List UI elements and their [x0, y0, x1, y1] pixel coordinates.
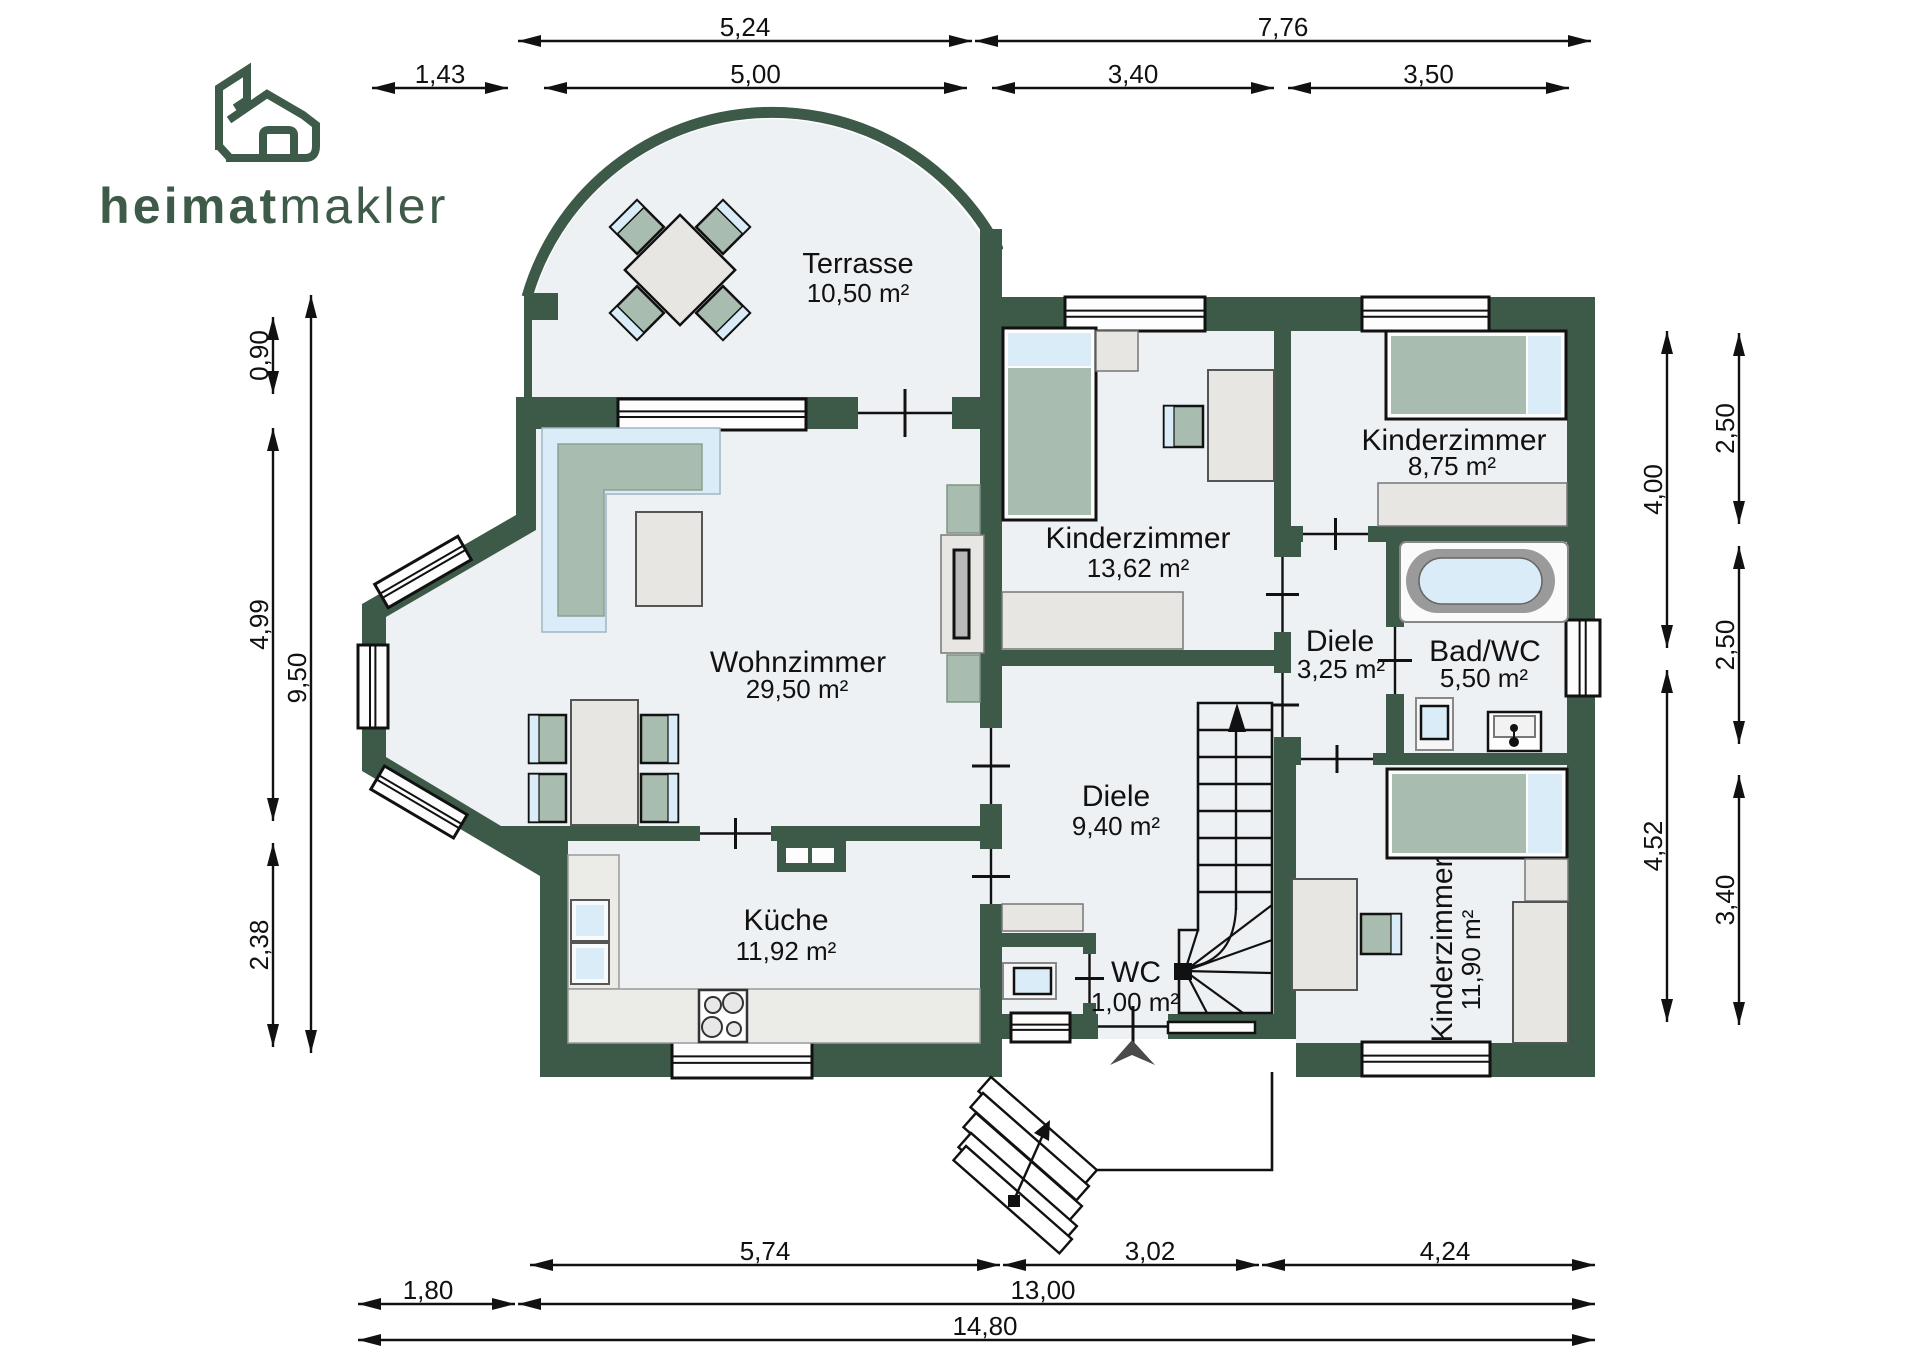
svg-text:5,74: 5,74: [740, 1236, 791, 1266]
svg-text:4,52: 4,52: [1638, 821, 1668, 872]
svg-text:3,40: 3,40: [1108, 59, 1159, 89]
svg-text:2,38: 2,38: [244, 920, 274, 971]
svg-text:11,92 m²: 11,92 m²: [736, 936, 837, 966]
svg-text:1,00 m²: 1,00 m²: [1091, 987, 1179, 1017]
svg-text:4,99: 4,99: [244, 599, 274, 650]
svg-text:0,90: 0,90: [244, 330, 274, 381]
svg-text:3,02: 3,02: [1125, 1236, 1176, 1266]
svg-text:Kinderzimmer: Kinderzimmer: [1426, 857, 1459, 1042]
svg-text:29,50 m²: 29,50 m²: [746, 674, 849, 704]
svg-text:9,40 m²: 9,40 m²: [1072, 811, 1160, 841]
svg-text:2,50: 2,50: [1710, 620, 1740, 671]
svg-text:4,00: 4,00: [1638, 464, 1668, 515]
svg-text:Diele: Diele: [1082, 780, 1150, 813]
svg-text:10,50 m²: 10,50 m²: [807, 278, 910, 308]
svg-text:13,00: 13,00: [1010, 1275, 1075, 1305]
svg-text:13,62 m²: 13,62 m²: [1087, 553, 1190, 583]
svg-text:3,25 m²: 3,25 m²: [1297, 654, 1385, 684]
svg-text:9,50: 9,50: [282, 653, 312, 704]
svg-text:5,50 m²: 5,50 m²: [1440, 663, 1528, 693]
svg-text:1,80: 1,80: [403, 1275, 454, 1305]
svg-text:5,00: 5,00: [730, 59, 781, 89]
svg-text:4,24: 4,24: [1420, 1236, 1471, 1266]
svg-text:11,90 m²: 11,90 m²: [1456, 909, 1486, 1010]
svg-text:14,80: 14,80: [952, 1311, 1017, 1341]
svg-text:heimatmakler: heimatmakler: [99, 178, 449, 234]
svg-text:2,50: 2,50: [1710, 403, 1740, 454]
svg-text:WC: WC: [1111, 956, 1161, 989]
svg-text:3,50: 3,50: [1403, 59, 1454, 89]
svg-text:5,24: 5,24: [720, 12, 771, 42]
svg-text:7,76: 7,76: [1258, 12, 1309, 42]
svg-text:1,43: 1,43: [415, 59, 466, 89]
svg-text:Küche: Küche: [743, 904, 828, 937]
svg-text:8,75 m²: 8,75 m²: [1408, 451, 1496, 481]
svg-text:Terrasse: Terrasse: [802, 248, 913, 280]
svg-text:3,40: 3,40: [1710, 875, 1740, 926]
svg-text:Kinderzimmer: Kinderzimmer: [1045, 522, 1230, 555]
